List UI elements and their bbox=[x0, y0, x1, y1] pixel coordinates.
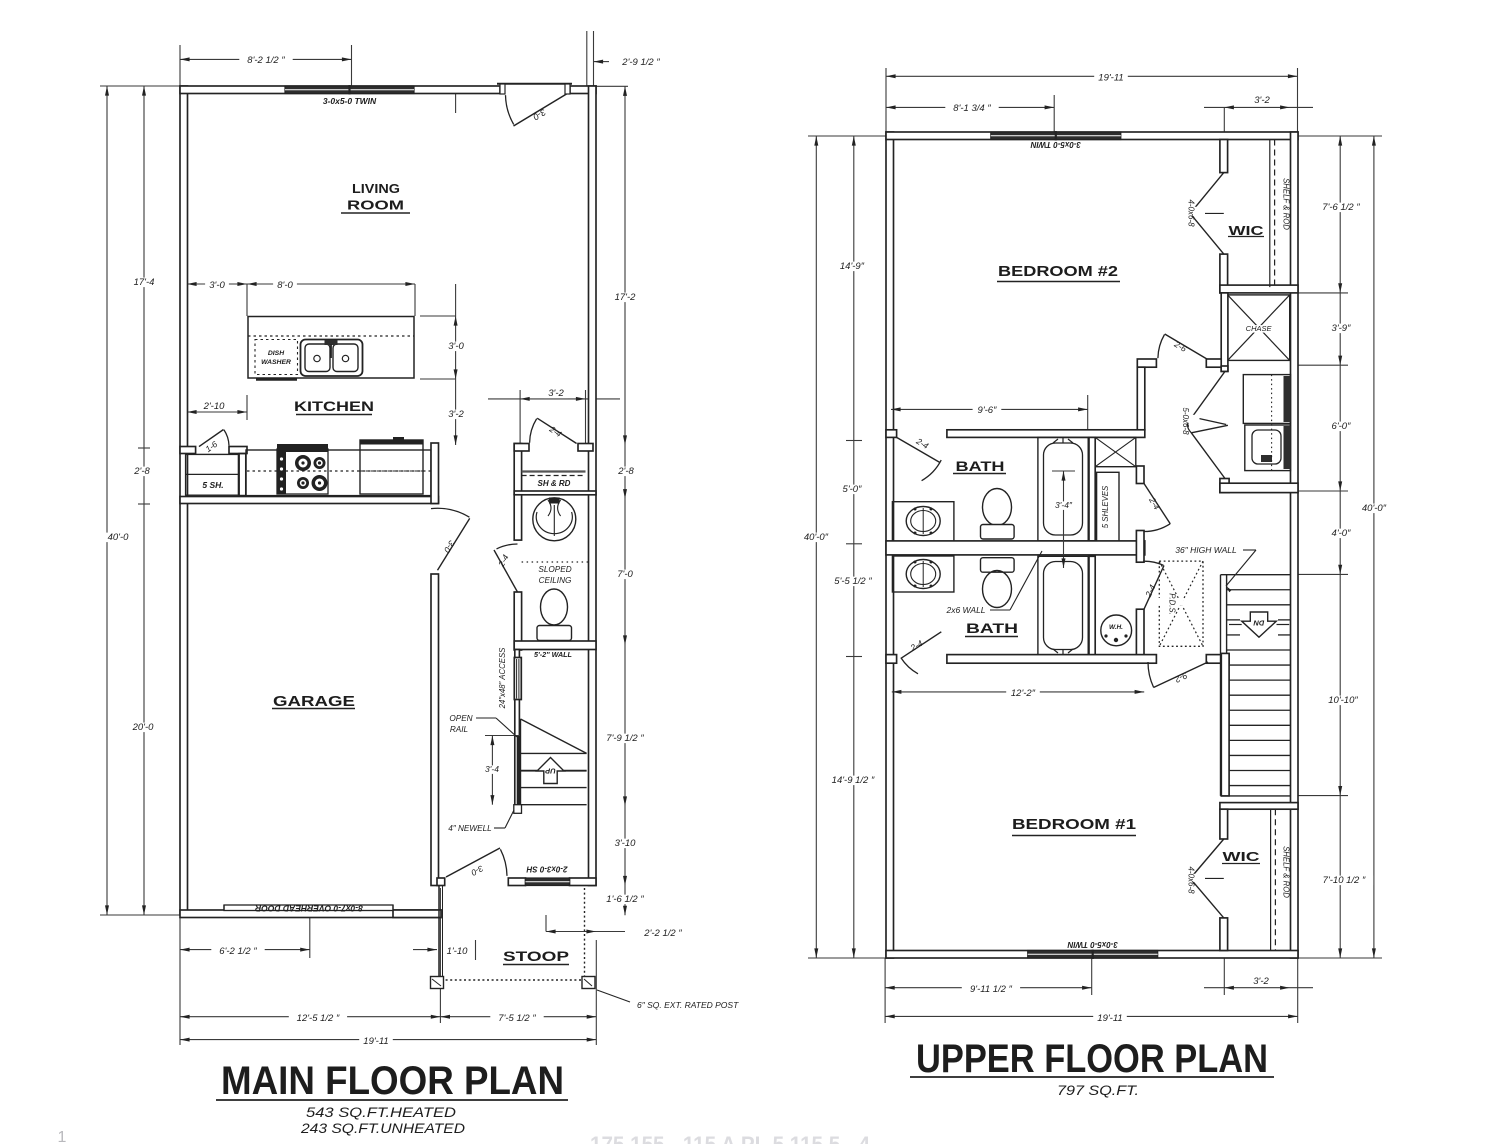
svg-text:1'-6 1/2 ″: 1'-6 1/2 ″ bbox=[606, 894, 644, 905]
svg-text:17'-4: 17'-4 bbox=[134, 277, 155, 288]
svg-text:2'-2 1/2 ″: 2'-2 1/2 ″ bbox=[643, 928, 682, 939]
svg-text:2'-8: 2'-8 bbox=[133, 466, 150, 477]
svg-text:8'-2 1/2 ″: 8'-2 1/2 ″ bbox=[247, 55, 285, 66]
svg-text:3'-4″: 3'-4″ bbox=[1055, 500, 1073, 510]
svg-text:2-0x3-0 SH: 2-0x3-0 SH bbox=[526, 865, 568, 874]
svg-text:2x6 WALL: 2x6 WALL bbox=[945, 605, 985, 615]
svg-text:STOOP: STOOP bbox=[503, 949, 569, 964]
svg-text:CHASE: CHASE bbox=[1246, 324, 1273, 333]
svg-text:SHELF & ROD: SHELF & ROD bbox=[1282, 846, 1291, 898]
svg-text:14'-9″: 14'-9″ bbox=[840, 261, 865, 272]
svg-text:3'-2: 3'-2 bbox=[548, 388, 564, 399]
svg-text:3'-9″: 3'-9″ bbox=[1332, 323, 1352, 334]
svg-text:5 SH.: 5 SH. bbox=[202, 480, 223, 490]
svg-text:17'-2: 17'-2 bbox=[615, 292, 637, 303]
svg-text:8'-1 3/4 ″: 8'-1 3/4 ″ bbox=[953, 103, 991, 114]
svg-text:UP: UP bbox=[544, 767, 555, 776]
svg-text:UPPER FLOOR PLAN: UPPER FLOOR PLAN bbox=[916, 1037, 1268, 1081]
svg-text:40'-0: 40'-0 bbox=[108, 532, 130, 543]
svg-text:1'-10: 1'-10 bbox=[447, 946, 469, 957]
svg-text:5'-2″ WALL: 5'-2″ WALL bbox=[534, 650, 572, 659]
svg-text:DN: DN bbox=[1253, 619, 1264, 628]
svg-text:MAIN FLOOR PLAN: MAIN FLOOR PLAN bbox=[221, 1059, 564, 1103]
svg-text:2-4: 2-4 bbox=[496, 553, 511, 570]
svg-text:4″ NEWELL: 4″ NEWELL bbox=[448, 824, 491, 833]
svg-text:WIC: WIC bbox=[1223, 850, 1260, 864]
svg-text:2-4: 2-4 bbox=[908, 638, 925, 653]
svg-text:W.H.: W.H. bbox=[1109, 624, 1123, 631]
svg-text:19'-11: 19'-11 bbox=[1098, 73, 1123, 84]
svg-text:9'-11 1/2 ″: 9'-11 1/2 ″ bbox=[970, 984, 1013, 995]
svg-text:12'-5 1/2 ″: 12'-5 1/2 ″ bbox=[297, 1013, 340, 1024]
svg-text:BATH: BATH bbox=[966, 620, 1018, 636]
svg-text:3-0: 3-0 bbox=[442, 539, 457, 555]
svg-text:7'-10 1/2 ″: 7'-10 1/2 ″ bbox=[1323, 875, 1366, 886]
svg-text:5'-0″: 5'-0″ bbox=[843, 484, 863, 495]
svg-text:7'-5 1/2 ″: 7'-5 1/2 ″ bbox=[498, 1013, 536, 1024]
svg-text:OPEN: OPEN bbox=[449, 714, 472, 723]
svg-text:CEILING: CEILING bbox=[539, 576, 572, 585]
svg-text:3'-2: 3'-2 bbox=[448, 409, 464, 420]
svg-text:1: 1 bbox=[58, 1129, 67, 1144]
svg-text:6″ SQ. EXT. RATED POST: 6″ SQ. EXT. RATED POST bbox=[637, 1000, 739, 1010]
svg-text:3-0: 3-0 bbox=[531, 107, 547, 122]
svg-text:243 SQ.FT.UNHEATED: 243 SQ.FT.UNHEATED bbox=[300, 1120, 465, 1136]
svg-text:2'-10: 2'-10 bbox=[203, 401, 226, 412]
svg-text:GARAGE: GARAGE bbox=[273, 694, 355, 710]
svg-text:3'-0: 3'-0 bbox=[209, 280, 225, 291]
svg-text:36″ HIGH WALL: 36″ HIGH WALL bbox=[1175, 545, 1237, 555]
svg-text:8'-0: 8'-0 bbox=[277, 280, 293, 291]
svg-text:3'-0: 3'-0 bbox=[448, 341, 464, 352]
svg-text:2'-8: 2'-8 bbox=[617, 466, 634, 477]
svg-text:10'-10″: 10'-10″ bbox=[1328, 695, 1358, 706]
svg-text:WASHER: WASHER bbox=[261, 359, 291, 366]
svg-text:7'-6 1/2 ″: 7'-6 1/2 ″ bbox=[1322, 202, 1360, 213]
svg-text:24″x48″ ACCESS: 24″x48″ ACCESS bbox=[498, 647, 507, 710]
svg-text:3'-10: 3'-10 bbox=[615, 838, 637, 849]
svg-text:7'-0: 7'-0 bbox=[617, 569, 633, 580]
svg-text:19'-11: 19'-11 bbox=[363, 1036, 388, 1047]
svg-text:3-0x5-0 TWIN: 3-0x5-0 TWIN bbox=[1067, 940, 1117, 949]
svg-text:7'-9 1/2 ″: 7'-9 1/2 ″ bbox=[606, 733, 644, 744]
svg-text:3'-2: 3'-2 bbox=[1254, 95, 1270, 106]
svg-text:P.D.S.: P.D.S. bbox=[1167, 593, 1176, 615]
svg-text:LIVING: LIVING bbox=[352, 181, 400, 196]
svg-text:DISH: DISH bbox=[268, 350, 285, 357]
svg-text:SH & RD: SH & RD bbox=[538, 479, 571, 488]
svg-text:BEDROOM #2: BEDROOM #2 bbox=[998, 263, 1118, 280]
svg-text:4-0x6-8: 4-0x6-8 bbox=[1187, 866, 1196, 894]
svg-text:BEDROOM #1: BEDROOM #1 bbox=[1012, 816, 1136, 833]
svg-text:6'-2 1/2 ″: 6'-2 1/2 ″ bbox=[219, 946, 257, 957]
svg-text:5-0x6-8: 5-0x6-8 bbox=[1181, 407, 1190, 435]
svg-text:12'-2″: 12'-2″ bbox=[1011, 688, 1036, 699]
svg-text:5 SHLEVES: 5 SHLEVES bbox=[1101, 485, 1110, 528]
svg-text:175 155 - 115 A PL 5 115 5 - 4: 175 155 - 115 A PL 5 115 5 - 4 bbox=[590, 1132, 871, 1144]
svg-text:8-0x7-0 OVERHEAD DOOR: 8-0x7-0 OVERHEAD DOOR bbox=[254, 904, 363, 914]
svg-text:9-2: 9-2 bbox=[1173, 671, 1189, 685]
svg-text:3'-2: 3'-2 bbox=[1253, 976, 1269, 987]
svg-text:SHELF & ROD: SHELF & ROD bbox=[1282, 178, 1291, 230]
svg-text:40'-0″: 40'-0″ bbox=[804, 532, 829, 543]
svg-text:543 SQ.FT.HEATED: 543 SQ.FT.HEATED bbox=[306, 1104, 456, 1120]
svg-text:40'-0″: 40'-0″ bbox=[1362, 503, 1387, 514]
svg-text:3'-4: 3'-4 bbox=[485, 764, 499, 774]
svg-text:797 SQ.FT.: 797 SQ.FT. bbox=[1057, 1082, 1139, 1098]
svg-text:9'-6″: 9'-6″ bbox=[978, 405, 998, 416]
svg-text:20'-0: 20'-0 bbox=[132, 722, 155, 733]
svg-text:14'-9 1/2 ″: 14'-9 1/2 ″ bbox=[832, 775, 875, 786]
svg-text:6'-0″: 6'-0″ bbox=[1332, 421, 1352, 432]
svg-text:3-0x5-0 TWIN: 3-0x5-0 TWIN bbox=[1030, 140, 1080, 149]
svg-text:BATH: BATH bbox=[956, 458, 1005, 474]
svg-text:KITCHEN: KITCHEN bbox=[294, 398, 374, 414]
svg-text:SLOPED: SLOPED bbox=[538, 565, 571, 574]
svg-text:5'-5 1/2 ″: 5'-5 1/2 ″ bbox=[834, 576, 872, 587]
svg-text:2'-9 1/2 ″: 2'-9 1/2 ″ bbox=[621, 57, 660, 68]
svg-text:19'-11: 19'-11 bbox=[1097, 1013, 1122, 1024]
svg-text:RAIL: RAIL bbox=[450, 725, 468, 734]
svg-text:4'-0″: 4'-0″ bbox=[1332, 528, 1352, 539]
svg-text:4-0x6-8: 4-0x6-8 bbox=[1187, 199, 1196, 227]
svg-text:ROOM: ROOM bbox=[347, 198, 404, 213]
svg-text:2-6: 2-6 bbox=[1172, 338, 1189, 353]
svg-text:3-0x5-0 TWIN: 3-0x5-0 TWIN bbox=[323, 96, 377, 106]
svg-text:3-0: 3-0 bbox=[469, 863, 485, 878]
